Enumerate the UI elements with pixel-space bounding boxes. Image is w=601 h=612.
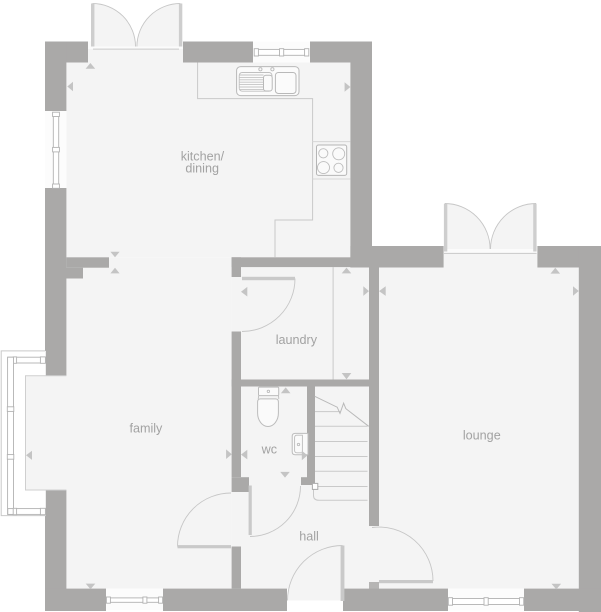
svg-text:laundry: laundry: [276, 333, 318, 347]
svg-text:hall: hall: [299, 530, 319, 544]
svg-text:lounge: lounge: [463, 429, 501, 443]
svg-text:dining: dining: [185, 162, 219, 176]
svg-text:wc: wc: [261, 443, 277, 457]
svg-text:family: family: [129, 422, 163, 436]
